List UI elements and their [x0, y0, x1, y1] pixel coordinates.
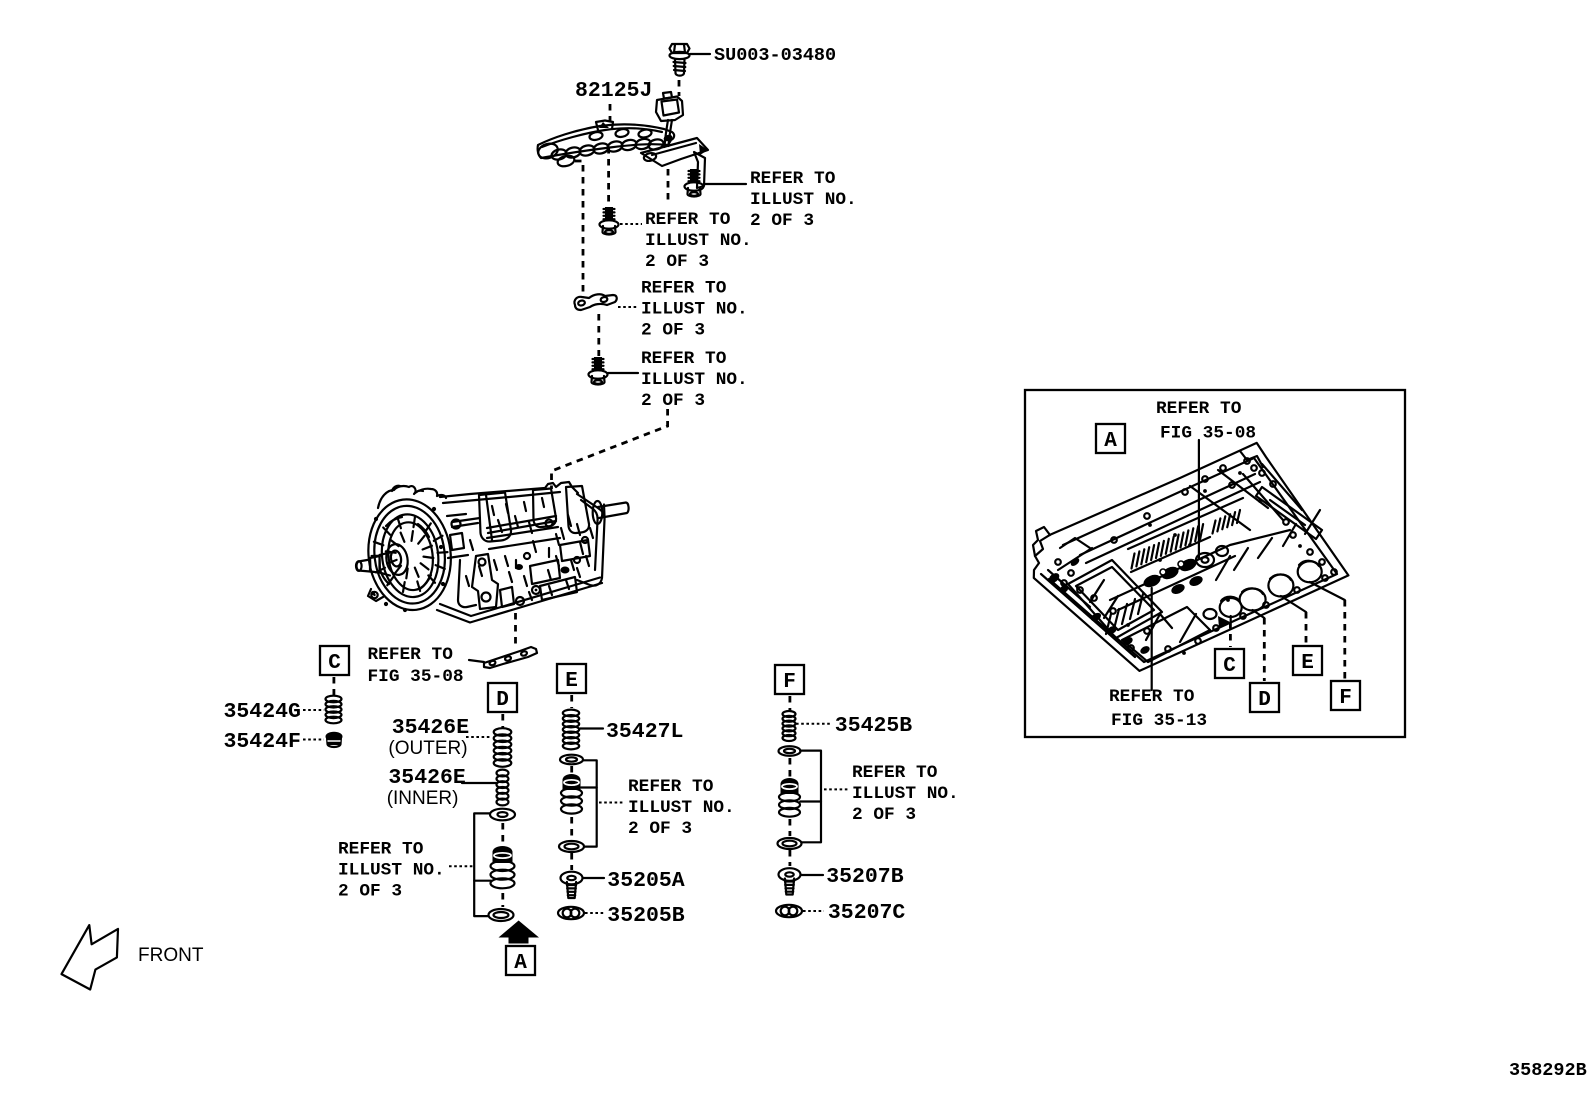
svg-text:35205B: 35205B [607, 904, 685, 928]
svg-text:2 OF 3: 2 OF 3 [338, 881, 402, 901]
svg-text:D: D [496, 689, 509, 712]
svg-text:REFER TO: REFER TO [1156, 399, 1242, 419]
svg-text:35427L: 35427L [606, 720, 683, 744]
svg-text:2 OF 3: 2 OF 3 [645, 252, 709, 272]
svg-text:FIG 35-08: FIG 35-08 [368, 667, 464, 687]
svg-text:ILLUST NO.: ILLUST NO. [628, 798, 735, 818]
svg-text:REFER TO: REFER TO [641, 349, 727, 369]
svg-text:35425B: 35425B [835, 714, 913, 738]
svg-text:35424G: 35424G [224, 700, 301, 724]
svg-text:E: E [1301, 652, 1314, 675]
svg-text:REFER TO: REFER TO [641, 279, 727, 299]
svg-text:ILLUST NO.: ILLUST NO. [641, 299, 748, 319]
svg-text:ILLUST NO.: ILLUST NO. [852, 784, 959, 804]
svg-text:A: A [514, 952, 527, 975]
svg-text:F: F [783, 671, 796, 694]
svg-text:F: F [1339, 687, 1352, 710]
svg-text:ILLUST NO.: ILLUST NO. [641, 370, 748, 390]
svg-text:2 OF 3: 2 OF 3 [852, 805, 916, 825]
svg-text:SU003-03480: SU003-03480 [714, 45, 836, 66]
svg-text:REFER TO: REFER TO [338, 840, 424, 860]
svg-text:C: C [1223, 655, 1236, 678]
svg-text:FIG 35-08: FIG 35-08 [1160, 424, 1256, 444]
svg-text:2 OF 3: 2 OF 3 [628, 819, 692, 839]
svg-text:35207B: 35207B [826, 865, 904, 889]
svg-text:C: C [328, 652, 341, 675]
svg-text:REFER TO: REFER TO [750, 169, 836, 189]
svg-text:82125J: 82125J [575, 79, 652, 103]
svg-text:35426E: 35426E [392, 716, 470, 740]
svg-text:35205A: 35205A [607, 869, 685, 893]
svg-text:REFER TO: REFER TO [852, 763, 938, 783]
svg-text:REFER TO: REFER TO [628, 777, 714, 797]
svg-text:ILLUST NO.: ILLUST NO. [750, 190, 857, 210]
svg-text:2 OF 3: 2 OF 3 [750, 211, 814, 231]
svg-text:35207C: 35207C [828, 901, 906, 925]
svg-text:E: E [565, 670, 578, 693]
svg-text:ILLUST NO.: ILLUST NO. [645, 231, 752, 251]
svg-text:2 OF 3: 2 OF 3 [641, 391, 705, 411]
svg-text:REFER TO: REFER TO [645, 210, 731, 230]
svg-text:FIG 35-13: FIG 35-13 [1111, 711, 1207, 731]
svg-text:REFER TO: REFER TO [368, 645, 454, 665]
svg-text:35424F: 35424F [224, 730, 301, 754]
svg-text:D: D [1258, 689, 1271, 712]
svg-text:35426E: 35426E [388, 766, 466, 790]
svg-text:(INNER): (INNER) [387, 788, 459, 809]
svg-text:FRONT: FRONT [138, 945, 204, 966]
svg-text:358292B: 358292B [1509, 1060, 1587, 1081]
svg-text:ILLUST NO.: ILLUST NO. [338, 860, 445, 880]
svg-text:(OUTER): (OUTER) [388, 738, 467, 759]
svg-text:2 OF 3: 2 OF 3 [641, 320, 705, 340]
svg-text:A: A [1104, 430, 1117, 453]
